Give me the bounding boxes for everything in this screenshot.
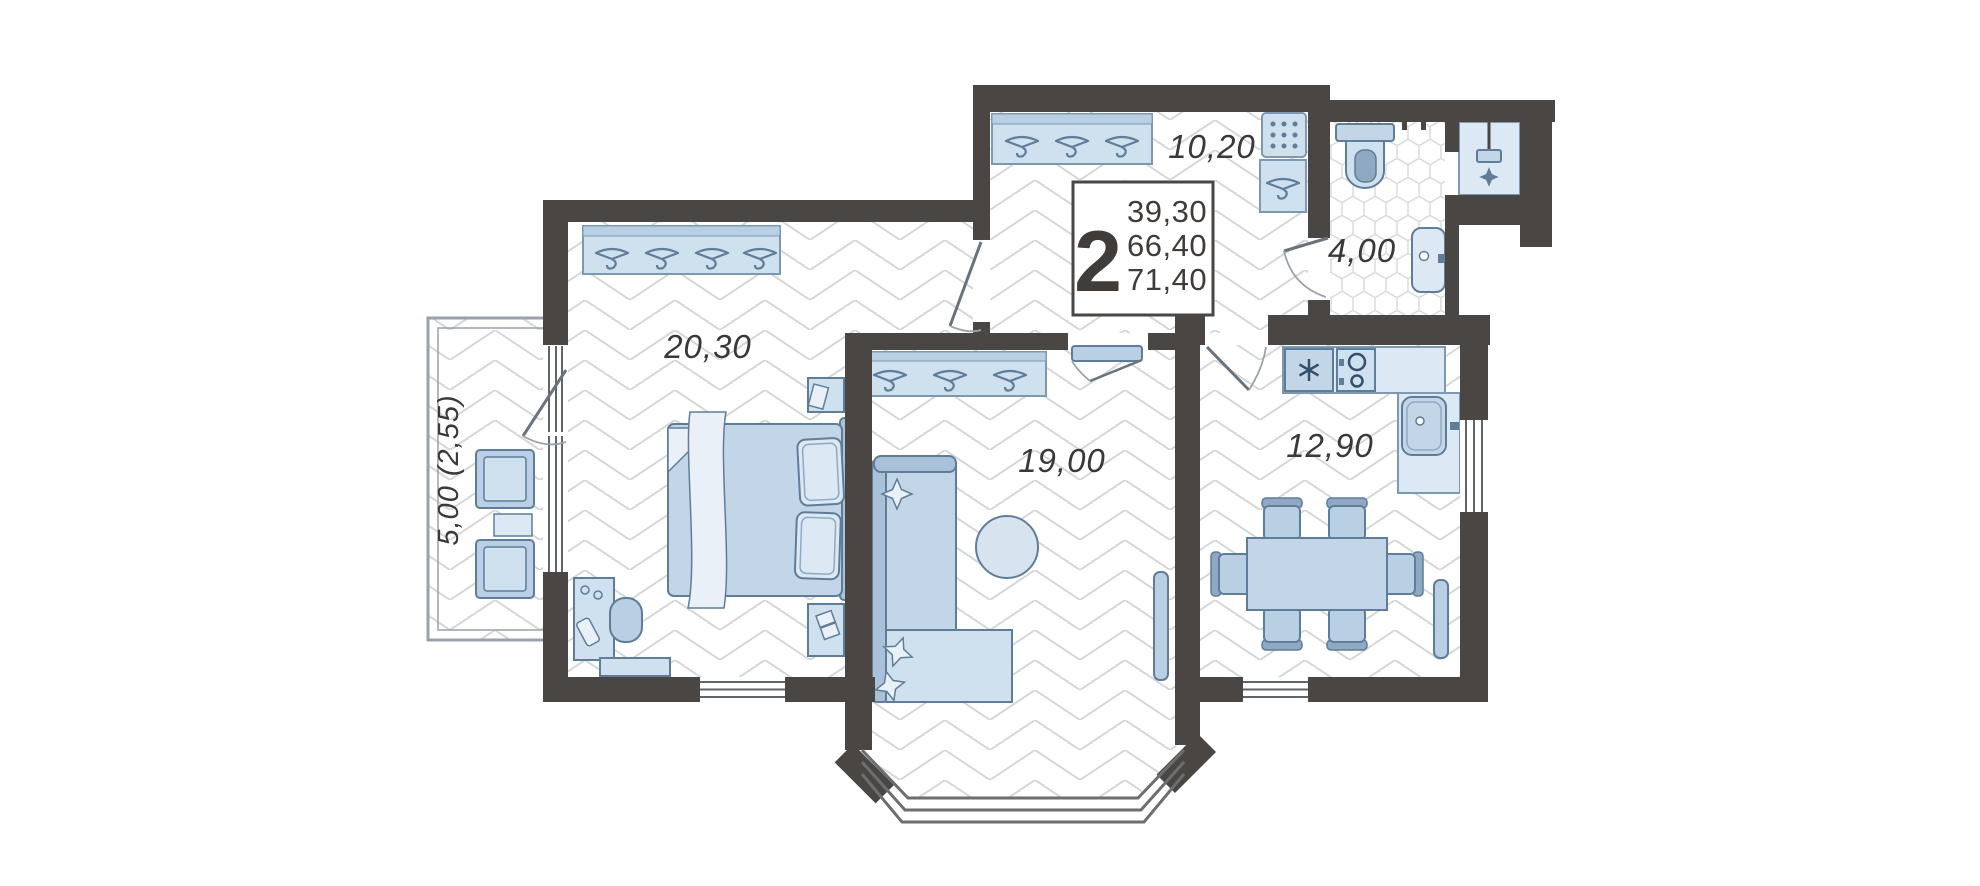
nightstand-bottom (808, 604, 844, 656)
hallway-closet (1260, 160, 1306, 212)
balcony-window (543, 436, 568, 572)
bathroom-sink (1412, 228, 1446, 292)
unit-area-living: 39,30 (1127, 194, 1207, 229)
room-label-bathroom: 4,00 (1328, 232, 1396, 269)
entry-door-tick (1421, 116, 1426, 130)
kitchen-right-window (1460, 420, 1488, 512)
stove (1337, 349, 1375, 391)
shower (1459, 122, 1520, 195)
washing-machine (1262, 113, 1306, 157)
balcony-chair-bottom (476, 540, 534, 598)
room-label-living-room: 19,00 (1018, 442, 1106, 479)
room-label-bedroom: 20,30 (663, 328, 752, 365)
pillow (797, 438, 844, 506)
desk (574, 578, 614, 660)
dining-chair (1211, 552, 1251, 596)
dining-chair (1327, 498, 1367, 540)
room-label-balcony: 5,00 (2,55) (433, 394, 465, 545)
unit-area-overall: 71,40 (1127, 262, 1207, 297)
entry-door-tick (1402, 116, 1407, 130)
unit-info-box: 2 39,30 66,40 71,40 (1073, 182, 1213, 315)
kitchen-bottom-window (1243, 677, 1308, 702)
balcony-door-panel (543, 346, 568, 432)
shower-head (1477, 150, 1501, 162)
pillow (795, 512, 841, 579)
dining-chair (1262, 608, 1302, 650)
nightstand-top (808, 378, 844, 412)
dining-chair (1327, 608, 1367, 650)
kitchen-radiator (1434, 580, 1448, 658)
round-coffee-table (976, 516, 1038, 578)
balcony-table (494, 514, 532, 536)
balcony-chair-top (476, 450, 534, 508)
unit-room-count: 2 (1074, 214, 1122, 310)
bed-runner (688, 412, 727, 608)
dining-chair (1383, 552, 1423, 596)
living-radiator (1154, 572, 1168, 680)
floor-plan-svg: 10,20 4,00 20,30 19,00 12,90 5,00 (2,55)… (0, 0, 1980, 886)
dining-table (1247, 538, 1387, 610)
desk-chair (610, 598, 642, 642)
low-cabinet (600, 658, 670, 676)
hallway-wardrobe (992, 114, 1152, 164)
room-label-kitchen: 12,90 (1286, 427, 1374, 464)
dining-chair (1262, 498, 1302, 540)
bedroom-window (700, 677, 785, 702)
fridge (1285, 349, 1333, 391)
unit-area-total: 66,40 (1127, 228, 1207, 263)
living-wardrobe (856, 352, 1046, 396)
floor-plan-page: 10,20 4,00 20,30 19,00 12,90 5,00 (2,55)… (0, 0, 1980, 886)
double-bed (668, 412, 853, 608)
bedroom-wardrobe (583, 226, 780, 274)
room-label-hallway: 10,20 (1168, 128, 1256, 165)
